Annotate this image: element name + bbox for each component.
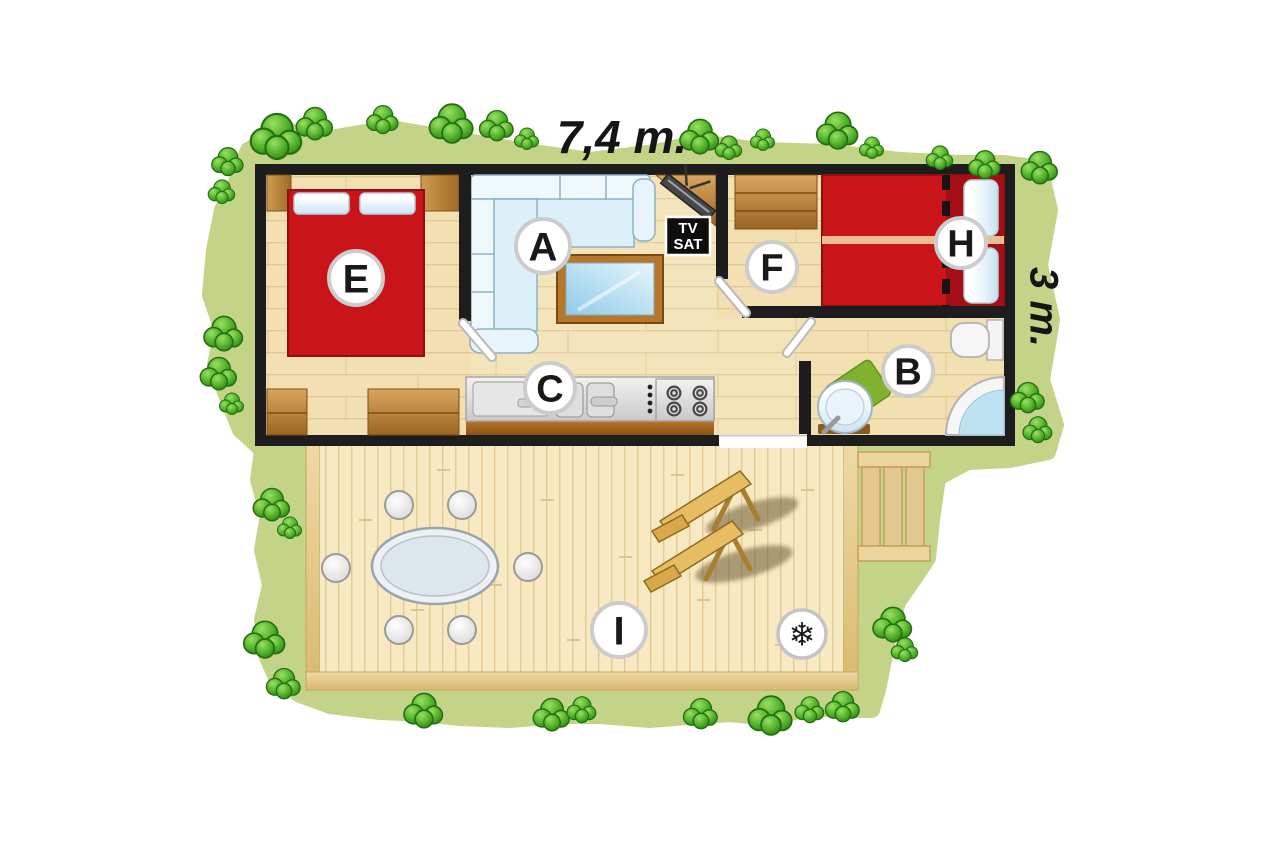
room-label-b: B <box>883 346 933 396</box>
terrace-chair <box>385 616 413 644</box>
bush-icon <box>212 148 243 176</box>
house: TV SAT <box>255 158 1015 448</box>
kitchen-stove <box>656 379 714 421</box>
wall-e-a <box>459 175 471 321</box>
bedroom-cabinet <box>267 389 307 435</box>
terrace-stairs <box>858 452 930 561</box>
sofa-armrest <box>633 179 655 241</box>
room-label-f: F <box>747 242 797 292</box>
room-label-e-text: E <box>343 257 370 301</box>
room-label-h-text: H <box>947 224 974 266</box>
bedroom-cabinet <box>368 389 459 435</box>
bed-pillow <box>294 193 349 214</box>
terrace-chair <box>448 616 476 644</box>
room-label-h: H <box>936 218 986 268</box>
bush-icon <box>480 111 514 141</box>
hallway-light <box>716 318 799 435</box>
room-label-e: E <box>329 251 383 305</box>
terrace-chair <box>514 553 542 581</box>
dimension-width-label: 7,4 m. <box>557 111 687 163</box>
dimension-height-label: 3 m. <box>1022 267 1066 347</box>
bed-pillow <box>360 193 415 214</box>
room-label-b-text: B <box>894 352 921 394</box>
bush-icon <box>1021 152 1057 184</box>
bush-icon <box>430 104 473 143</box>
ac-badge: ❄ <box>778 610 826 658</box>
bathroom-sink-basin <box>826 389 864 425</box>
bush-icon <box>751 129 775 151</box>
bush-icon <box>860 137 884 159</box>
terrace-border-bottom <box>306 672 858 690</box>
room-label-c: C <box>525 363 575 413</box>
terrace-table-top <box>381 536 489 596</box>
sofa-back-left <box>471 199 495 331</box>
headboard-block <box>421 175 459 211</box>
bush-icon <box>817 112 858 149</box>
bush-icon <box>367 106 398 134</box>
terrace-border-right <box>843 443 858 690</box>
terrace-chair <box>448 491 476 519</box>
room-label-i-text: I <box>613 609 624 653</box>
terrace-chair <box>322 554 350 582</box>
room-label-f-text: F <box>760 248 783 290</box>
room-label-c-text: C <box>536 369 563 411</box>
bush-icon <box>926 146 952 170</box>
floor-plan-svg: ❄ I <box>0 0 1280 850</box>
toilet-bowl <box>951 323 989 357</box>
snowflake-icon: ❄ <box>789 617 816 653</box>
room-label-terrace: I <box>592 603 646 657</box>
kitchen-faucet <box>591 397 617 406</box>
room-label-a-text: A <box>529 225 558 269</box>
tv-sat-box: TV SAT <box>666 217 710 255</box>
tv-sat-line1: TV <box>678 220 697 237</box>
terrace: ❄ I <box>306 443 930 690</box>
tv-sat-line2: SAT <box>674 236 703 253</box>
floor-plan-canvas: ❄ I <box>0 0 1280 850</box>
bush-icon <box>296 108 332 140</box>
terrace-border-left <box>306 443 320 690</box>
bush-icon <box>251 114 301 159</box>
room-label-a: A <box>516 219 570 273</box>
wardrobe <box>735 175 817 229</box>
bush-icon <box>969 151 1000 179</box>
room-c-kitchen <box>466 377 714 435</box>
wall-f-bottom <box>742 306 1004 318</box>
wall-bathroom <box>799 361 811 435</box>
wall-a-f <box>716 175 728 279</box>
entrance-opening <box>719 434 807 448</box>
bush-icon <box>515 128 539 150</box>
terrace-chair <box>385 491 413 519</box>
